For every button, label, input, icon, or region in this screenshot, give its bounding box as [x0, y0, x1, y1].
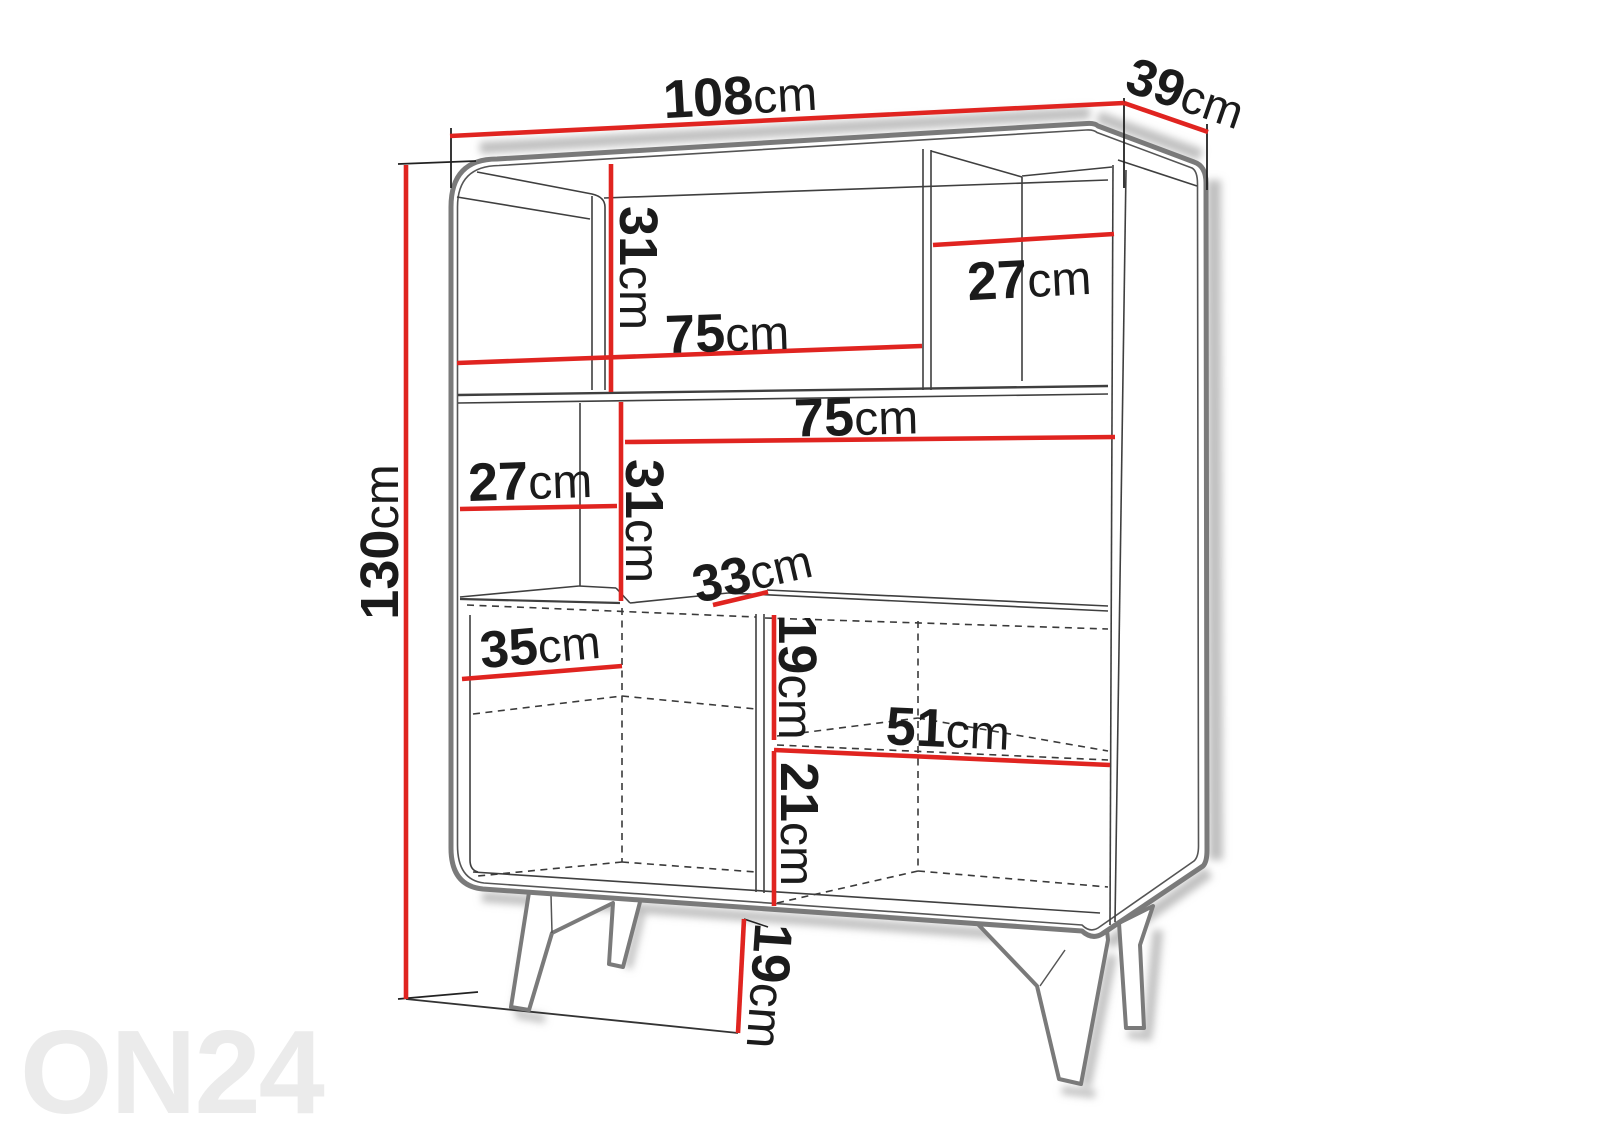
svg-text:19cm: 19cm [767, 614, 827, 739]
svg-text:130cm: 130cm [350, 464, 410, 619]
svg-text:75cm: 75cm [664, 301, 790, 365]
svg-text:31cm: 31cm [608, 206, 668, 330]
svg-text:21cm: 21cm [769, 762, 829, 886]
svg-text:27cm: 27cm [467, 449, 593, 513]
svg-text:ON24: ON24 [20, 1006, 325, 1139]
svg-text:27cm: 27cm [966, 246, 1093, 312]
svg-text:31cm: 31cm [614, 459, 674, 583]
svg-text:108cm: 108cm [661, 62, 818, 131]
svg-text:75cm: 75cm [793, 385, 919, 448]
svg-text:51cm: 51cm [885, 696, 1012, 761]
